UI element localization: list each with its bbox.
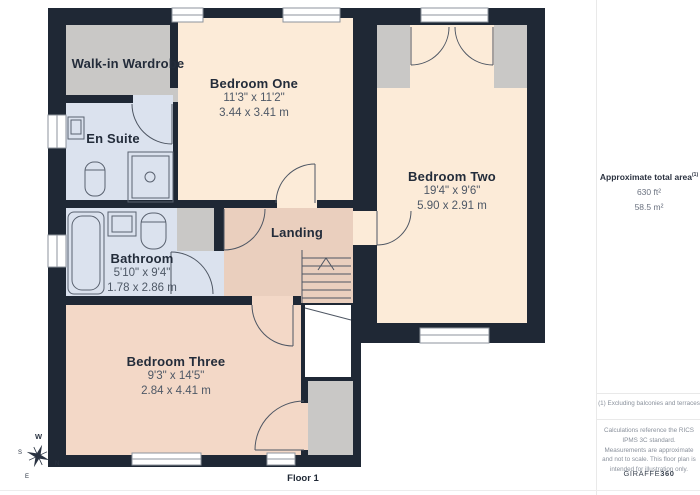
- bedroom-one-door-opening: [277, 200, 317, 208]
- window: [267, 453, 295, 465]
- bedroom-three-door-opening-top: [252, 296, 293, 305]
- compass-north-label: N: [55, 461, 59, 467]
- floor-plan-canvas: Walk-in Wardrobe En Suite Bedroom One 11…: [0, 0, 700, 495]
- room-label-bedroom-one: Bedroom One 11'3" x 11'2" 3.44 x 3.41 m: [210, 76, 298, 121]
- window: [421, 8, 488, 22]
- compass-west-label: W: [35, 432, 43, 441]
- room-label-bedroom-two: Bedroom Two 19'4" x 9'6" 5.90 x 2.91 m: [408, 169, 496, 214]
- total-area-metric: 58.5 m²: [597, 202, 700, 212]
- window: [48, 115, 66, 148]
- floor-plan-drawing: [0, 0, 700, 495]
- window: [283, 8, 340, 22]
- window: [132, 453, 201, 465]
- area-footnote: (1) Excluding balconies and terraces: [597, 400, 700, 407]
- room-label-en-suite: En Suite: [86, 131, 140, 146]
- bottom-divider: [0, 490, 700, 491]
- bathroom-closet-floor: [177, 208, 214, 251]
- window: [48, 235, 66, 267]
- compass-star: [23, 441, 54, 472]
- bedroom-two-closet-left-floor: [377, 25, 410, 88]
- info-panel: Approximate total area(1) 630 ft² 58.5 m…: [596, 0, 700, 495]
- bedroom-three-closet-floor: [308, 381, 353, 455]
- total-area-block: Approximate total area(1) 630 ft² 58.5 m…: [597, 172, 700, 212]
- bedroom-two-door-opening: [353, 211, 377, 245]
- compass-rose: W S N E: [16, 430, 62, 480]
- compass-south-label: S: [18, 450, 22, 456]
- bedroom-two-closet-right-floor: [494, 25, 527, 88]
- room-label-landing: Landing: [271, 225, 323, 240]
- floor-label: Floor 1: [287, 473, 319, 484]
- room-label-walk-in-wardrobe: Walk-in Wardrobe: [72, 56, 185, 71]
- giraffe360-logo: GIRAFFE360: [597, 469, 700, 478]
- room-label-bathroom: Bathroom 5'10" x 9'4" 1.78 x 2.86 m: [107, 251, 177, 296]
- disclaimer-text: Calculations reference the RICS IPMS 3C …: [597, 426, 700, 475]
- en-suite-door-opening: [133, 95, 173, 103]
- panel-divider: [597, 419, 700, 420]
- panel-divider: [597, 393, 700, 394]
- total-area-imperial: 630 ft²: [597, 187, 700, 197]
- stairwell-void: [305, 305, 351, 377]
- compass-east-label: E: [25, 474, 29, 480]
- room-label-bedroom-three: Bedroom Three 9'3" x 14'5" 2.84 x 4.41 m: [127, 354, 226, 399]
- window: [172, 8, 203, 22]
- bedroom-three-door-opening-side: [300, 403, 309, 450]
- room-landing-floor: [224, 208, 353, 303]
- window: [420, 328, 489, 343]
- area-footnote-marker: (1): [692, 172, 698, 178]
- total-area-heading: Approximate total area(1): [597, 172, 700, 182]
